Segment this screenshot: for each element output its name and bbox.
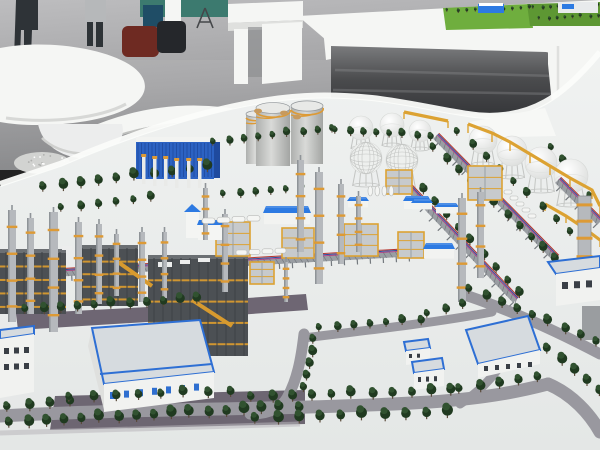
tree: [579, 13, 581, 15]
tree: [528, 232, 533, 237]
deck-equipment: [198, 258, 210, 262]
column-cap: [300, 155, 302, 160]
window: [574, 281, 580, 288]
platform-ring: [161, 288, 169, 290]
platform-ring: [337, 195, 346, 197]
platform-ring: [48, 314, 60, 316]
bullet-tank: [262, 249, 273, 254]
deck-equipment: [180, 260, 190, 264]
tree: [564, 15, 566, 17]
bench-top: [228, 1, 303, 23]
tree: [540, 202, 545, 207]
tree: [459, 299, 464, 304]
platform-ring: [355, 231, 363, 233]
platform-ring: [7, 253, 18, 255]
platform-ring: [296, 195, 306, 197]
tree: [369, 387, 375, 393]
walkway-band: [76, 261, 138, 263]
tree: [455, 164, 460, 169]
tree: [289, 389, 295, 395]
window: [562, 282, 568, 289]
tree: [511, 177, 515, 181]
tree: [39, 181, 44, 186]
tree: [255, 132, 259, 136]
column-cap: [78, 217, 80, 222]
platform-ring: [7, 279, 18, 281]
small-column-body: [153, 156, 157, 186]
tree: [360, 127, 365, 132]
tree: [514, 303, 519, 308]
platform-ring: [337, 214, 346, 216]
tree: [389, 387, 395, 393]
tree: [517, 221, 522, 226]
tree: [549, 5, 551, 7]
tree: [470, 139, 475, 144]
tree: [203, 158, 210, 165]
mini-model-blue-roof: [562, 4, 574, 9]
tree: [528, 4, 530, 6]
glitter-dot: [30, 160, 32, 162]
window: [152, 388, 157, 395]
bullet-tank: [389, 186, 394, 196]
platform-ring: [221, 262, 230, 264]
tree: [347, 126, 352, 131]
tree: [275, 400, 281, 406]
platform-ring: [161, 241, 169, 243]
platform-ring: [314, 188, 325, 190]
tree: [334, 321, 339, 326]
window: [124, 391, 129, 398]
tree: [227, 135, 232, 140]
tree: [357, 405, 365, 413]
tree: [253, 187, 258, 192]
tree: [66, 392, 71, 397]
small-column-cap: [174, 158, 179, 161]
small-gold-part: [293, 115, 301, 120]
tree: [223, 405, 229, 411]
tree: [476, 379, 483, 386]
tree: [77, 176, 83, 182]
tree: [193, 292, 199, 298]
tree: [539, 241, 545, 247]
column-cap: [164, 227, 166, 232]
window: [418, 377, 421, 382]
distillation-column: [26, 213, 36, 314]
bullet-tank: [275, 248, 286, 253]
platform-ring: [296, 238, 306, 240]
tree: [40, 302, 46, 308]
column-cap: [30, 213, 32, 218]
glitter-dot: [61, 157, 63, 159]
tree: [306, 357, 312, 363]
tree: [300, 382, 305, 387]
platform-ring: [221, 280, 230, 282]
column-cap: [285, 257, 287, 262]
window: [484, 366, 488, 371]
platform-ring: [283, 296, 290, 298]
tree: [562, 322, 568, 328]
small-column-cap: [197, 158, 202, 161]
tree: [430, 142, 435, 147]
platform-ring: [138, 292, 147, 294]
distillation-column: [314, 167, 325, 284]
bullet-tank: [236, 250, 247, 255]
tree: [570, 363, 577, 370]
tree: [520, 6, 522, 8]
tree: [135, 389, 140, 394]
column-cap: [116, 229, 118, 234]
platform-ring: [26, 254, 36, 256]
tree: [204, 386, 210, 392]
tree: [583, 374, 589, 380]
window: [4, 364, 9, 370]
tree: [268, 186, 272, 190]
flat-roof-building: [0, 326, 34, 398]
tree: [184, 404, 191, 411]
tree: [505, 209, 510, 214]
column-cap: [318, 167, 320, 172]
tree: [402, 407, 409, 414]
tree: [179, 385, 185, 391]
bullet-tank: [368, 186, 373, 196]
tree: [113, 172, 118, 177]
platform-ring: [337, 234, 346, 236]
tree: [210, 138, 214, 142]
tree: [399, 314, 404, 319]
tree: [251, 412, 257, 418]
bullet-tank: [510, 196, 518, 200]
tree: [332, 126, 336, 130]
tree: [274, 410, 281, 417]
bullet-tank: [202, 218, 215, 224]
tree: [257, 400, 264, 407]
tree: [46, 396, 52, 402]
tree: [205, 405, 211, 411]
window: [495, 365, 499, 370]
column-cap: [461, 193, 463, 198]
tree: [113, 389, 119, 395]
bench-leg-right: [262, 22, 302, 84]
tree: [160, 296, 165, 301]
tree: [466, 284, 471, 289]
window: [517, 363, 521, 368]
tree: [408, 387, 413, 392]
platform-ring: [113, 272, 121, 274]
small-gold-part: [280, 111, 288, 116]
platform-ring: [138, 259, 147, 261]
handbag: [122, 26, 159, 57]
platform-ring: [95, 274, 104, 276]
tree: [548, 16, 550, 18]
tree: [74, 301, 79, 306]
glitter-dot: [28, 161, 30, 163]
chimney-platform: [577, 203, 593, 206]
platform-ring: [202, 195, 210, 197]
tree: [446, 8, 448, 10]
platform-ring: [138, 275, 147, 277]
small-column-cap: [152, 156, 157, 159]
bullet-tank: [516, 202, 524, 206]
tree: [78, 200, 83, 205]
tree: [559, 154, 564, 159]
small-column-cap: [141, 154, 146, 157]
tree: [239, 401, 246, 408]
walkway-band: [76, 286, 138, 288]
platform-ring: [314, 215, 325, 217]
tree: [158, 389, 163, 394]
tree: [493, 262, 498, 267]
tree: [558, 352, 565, 359]
tree: [328, 389, 333, 394]
tree: [447, 383, 453, 389]
tree: [58, 203, 62, 207]
cylinder-top: [291, 101, 323, 111]
tree: [428, 132, 432, 136]
column-cap: [358, 191, 360, 196]
distillation-column: [7, 205, 18, 322]
tree: [532, 5, 534, 7]
exhibition-photo: [0, 0, 600, 450]
tree: [131, 195, 135, 199]
platform-ring: [74, 235, 84, 237]
tree: [444, 153, 450, 159]
tree: [424, 309, 428, 313]
platform-ring: [283, 277, 290, 279]
glitter-dot: [49, 155, 51, 157]
platform-ring: [296, 173, 306, 175]
window: [434, 376, 437, 381]
tree: [295, 410, 302, 417]
small-gold-part: [254, 109, 262, 114]
tree: [387, 129, 391, 133]
tree: [127, 297, 133, 303]
tower-wall: [186, 210, 199, 238]
window: [426, 377, 429, 382]
bullet-tank: [375, 186, 380, 196]
camera-bag: [157, 21, 186, 53]
tree: [147, 191, 152, 196]
platform-ring: [355, 204, 363, 206]
flat-roof-building: [88, 320, 214, 412]
tree: [95, 174, 101, 180]
platform-ring: [74, 257, 84, 259]
tree: [57, 301, 63, 307]
tree: [308, 389, 314, 395]
bullet-tank: [528, 214, 536, 218]
tree: [567, 227, 571, 231]
platform-ring: [476, 204, 486, 206]
bullet-tank: [249, 249, 260, 254]
platform-ring: [476, 265, 486, 267]
tree: [227, 386, 232, 391]
tree: [577, 329, 582, 334]
building-wall: [412, 203, 432, 209]
tree: [511, 6, 513, 8]
chimney-platform: [577, 237, 593, 240]
tree: [483, 289, 489, 295]
tree: [26, 398, 33, 405]
tree: [529, 310, 534, 315]
tree: [571, 15, 573, 17]
module-frame: [76, 248, 138, 306]
tree: [95, 199, 100, 204]
window: [194, 384, 199, 391]
column-cap: [205, 183, 207, 188]
tree: [483, 152, 488, 157]
platform-ring: [48, 258, 60, 260]
bench-shadow: [248, 27, 263, 77]
distillation-column: [48, 207, 60, 332]
tree: [238, 188, 243, 193]
tree: [167, 405, 174, 412]
tree: [90, 390, 96, 396]
tree: [543, 313, 549, 319]
platform-ring: [221, 225, 230, 227]
tree: [597, 14, 599, 16]
platform-ring: [314, 241, 325, 243]
tree: [553, 214, 558, 219]
tree: [423, 407, 429, 413]
tree: [381, 407, 388, 414]
window: [506, 364, 510, 369]
platform-ring: [26, 231, 36, 233]
tree: [301, 127, 306, 132]
platform-ring: [7, 226, 18, 228]
tree: [283, 127, 288, 132]
bullet-tank: [522, 208, 530, 212]
tree: [534, 371, 539, 376]
distillation-column: [476, 187, 486, 278]
tree: [373, 128, 377, 132]
platform-ring: [138, 242, 147, 244]
platform-ring: [48, 229, 60, 231]
platform-ring: [355, 217, 363, 219]
gable-building: [411, 199, 433, 209]
platform-ring: [202, 232, 210, 234]
tree: [551, 252, 557, 258]
tree: [143, 297, 148, 302]
window: [14, 348, 19, 354]
bench-leg-left: [234, 29, 248, 84]
small-column-body: [175, 158, 179, 188]
process-module: [468, 166, 502, 200]
tree: [130, 167, 137, 174]
window: [166, 386, 171, 393]
walkway-band: [76, 273, 138, 275]
platform-ring: [457, 262, 468, 264]
platform-ring: [48, 286, 60, 288]
platform-ring: [221, 244, 230, 246]
tree: [269, 389, 276, 396]
tree: [220, 190, 224, 194]
platform-ring: [476, 245, 486, 247]
glitter-dot: [39, 156, 41, 158]
tree: [42, 414, 49, 421]
tree: [399, 128, 404, 133]
glitter-dot: [42, 163, 44, 165]
tree: [107, 296, 113, 302]
platform-ring: [95, 235, 104, 237]
process-module: [398, 232, 424, 258]
tree: [310, 334, 315, 339]
tree: [505, 276, 510, 281]
glitter-dot: [43, 154, 45, 156]
tree: [442, 403, 450, 411]
small-column-cap: [186, 158, 191, 161]
building-wall: [436, 207, 458, 213]
glitter-dot: [33, 163, 35, 165]
blue-building-side: [214, 142, 220, 178]
distillation-column: [74, 217, 84, 314]
platform-ring: [161, 273, 169, 275]
tree: [515, 374, 521, 380]
window: [417, 354, 420, 358]
column-cap: [141, 227, 143, 232]
process-module: [250, 262, 274, 284]
platform-ring: [296, 217, 306, 219]
tree: [60, 413, 66, 419]
column-cap: [53, 207, 55, 212]
tree: [593, 336, 598, 341]
tree: [283, 185, 287, 189]
column-cap: [98, 219, 100, 224]
window: [586, 280, 592, 287]
platform-ring: [95, 292, 104, 294]
column-cap: [11, 205, 13, 210]
window: [528, 362, 532, 367]
tree: [315, 126, 319, 130]
tree: [241, 134, 246, 139]
window: [24, 347, 29, 353]
bullet-tank: [504, 190, 512, 194]
deck-equipment: [62, 246, 72, 250]
small-column-body: [164, 156, 168, 186]
tree: [466, 8, 468, 10]
tree: [443, 303, 448, 308]
tree: [474, 7, 476, 9]
tower-annex: [198, 224, 222, 240]
platform-ring: [26, 300, 36, 302]
platform-ring: [314, 267, 325, 269]
tree: [247, 391, 252, 396]
gable-building: [423, 243, 455, 259]
tree: [367, 319, 372, 324]
tree: [346, 385, 353, 392]
column-cap: [340, 179, 342, 184]
platform-ring: [113, 243, 121, 245]
tree: [556, 16, 558, 18]
tree: [91, 300, 96, 305]
tree: [590, 14, 592, 16]
tree: [383, 318, 387, 322]
platform-ring: [457, 238, 468, 240]
module-deck: [76, 245, 138, 249]
platform-ring: [113, 258, 121, 260]
column-cap: [480, 187, 482, 192]
tree: [5, 417, 10, 422]
small-column-cap: [163, 156, 168, 159]
platform-ring: [202, 208, 210, 210]
tree: [316, 409, 322, 415]
platform-ring: [476, 225, 486, 227]
platform-ring: [355, 244, 363, 246]
tree: [457, 8, 459, 10]
tree: [133, 409, 139, 415]
tree: [542, 5, 544, 7]
tree: [351, 320, 356, 325]
tree: [543, 343, 548, 348]
platform-ring: [113, 287, 121, 289]
